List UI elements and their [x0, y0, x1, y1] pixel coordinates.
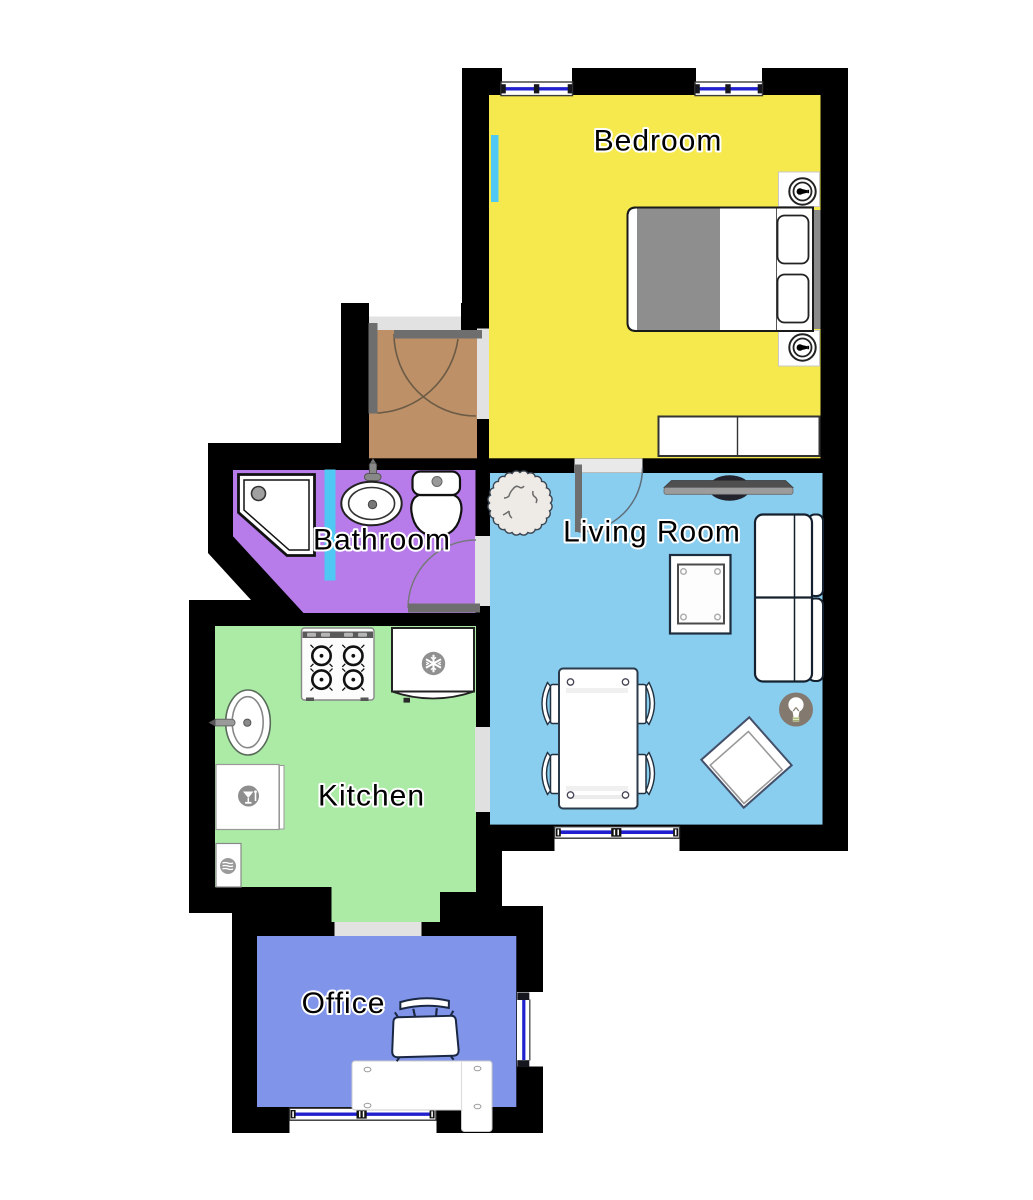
svg-text:Bedroom: Bedroom	[594, 125, 723, 158]
svg-text:Office: Office	[302, 987, 386, 1020]
svg-text:Living Room: Living Room	[563, 516, 741, 549]
svg-text:Bathroom: Bathroom	[313, 524, 451, 557]
svg-text:Kitchen: Kitchen	[318, 780, 425, 813]
